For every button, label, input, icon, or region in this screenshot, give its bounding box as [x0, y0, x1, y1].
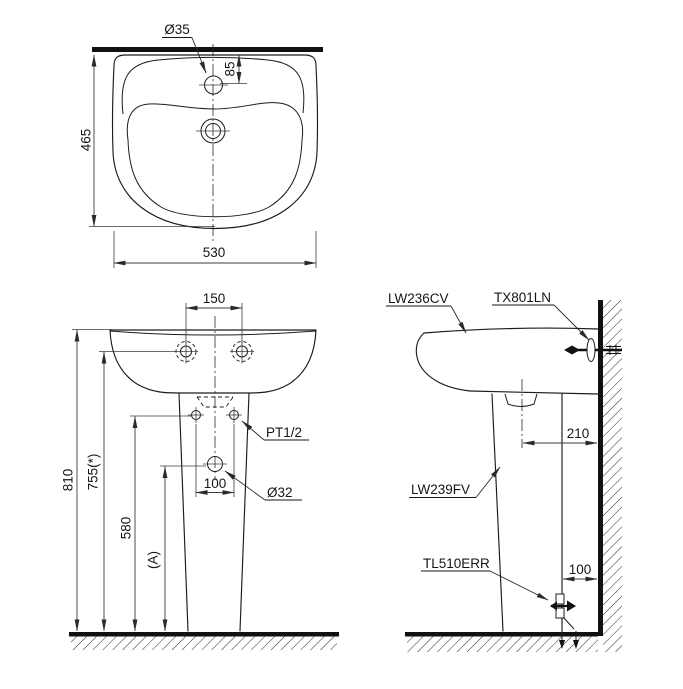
pedestal-model-label: LW239FV	[411, 482, 470, 497]
valve-model-leader	[490, 571, 548, 600]
lavatory-model-leader	[451, 306, 466, 333]
wall-edge-bar	[92, 47, 323, 52]
hanger-model-label: TX801LN	[494, 290, 551, 305]
dim-580-label: 580	[119, 517, 134, 540]
wall-hatch	[603, 300, 622, 652]
supply-hole-right	[226, 407, 242, 423]
pedestal-right-edge	[240, 393, 249, 631]
front-rim-arc	[110, 331, 316, 335]
front-basin-outline	[110, 330, 316, 393]
side-pedestal-front	[492, 394, 503, 631]
valve-model-label: TL510ERR	[423, 556, 490, 571]
installation-drawing: Ø35 85 465 530	[0, 0, 683, 689]
front-view: 150 100 PT1/2 Ø32	[61, 291, 340, 650]
drawing-canvas: Ø35 85 465 530	[0, 0, 683, 689]
top-view: Ø35 85 465 530	[79, 22, 324, 268]
faucet-diameter-label: Ø35	[164, 22, 190, 37]
dim-810-label: 810	[61, 469, 76, 492]
side-basin-front-curve	[416, 333, 470, 391]
floor-hatch-side	[407, 637, 598, 653]
dim-150-label: 150	[203, 291, 226, 306]
dim-755-label: 755(*)	[86, 454, 101, 491]
dim-530-label: 530	[203, 245, 226, 260]
pedestal-left-edge	[179, 393, 188, 631]
dim-100f-label: 100	[204, 476, 227, 491]
side-drain-recess	[505, 394, 537, 407]
supply-hole-left	[188, 407, 204, 423]
basin-outer-outline	[112, 55, 317, 229]
dim-465-label: 465	[79, 129, 94, 152]
floor-line-side	[405, 632, 598, 637]
side-view: 210 100 LW236C	[386, 290, 622, 652]
dim-100s-label: 100	[569, 562, 592, 577]
hanger-model-leader	[554, 305, 589, 340]
floor-hatch-front	[71, 637, 337, 651]
side-basin-bottom	[470, 391, 598, 394]
dim-A-label: (A)	[146, 551, 161, 569]
stop-valve	[550, 594, 576, 618]
side-basin-top	[424, 328, 598, 333]
supply-thread-leader	[242, 421, 264, 440]
dim-210-label: 210	[567, 426, 590, 441]
lavatory-model-label: LW236CV	[388, 291, 449, 306]
dim-85-label: 85	[223, 61, 238, 76]
supply-thread-label: PT1/2	[266, 425, 302, 440]
drain-diameter-label: Ø32	[267, 485, 293, 500]
floor-line-front	[69, 632, 339, 637]
bowl-inner-outline	[127, 103, 302, 217]
